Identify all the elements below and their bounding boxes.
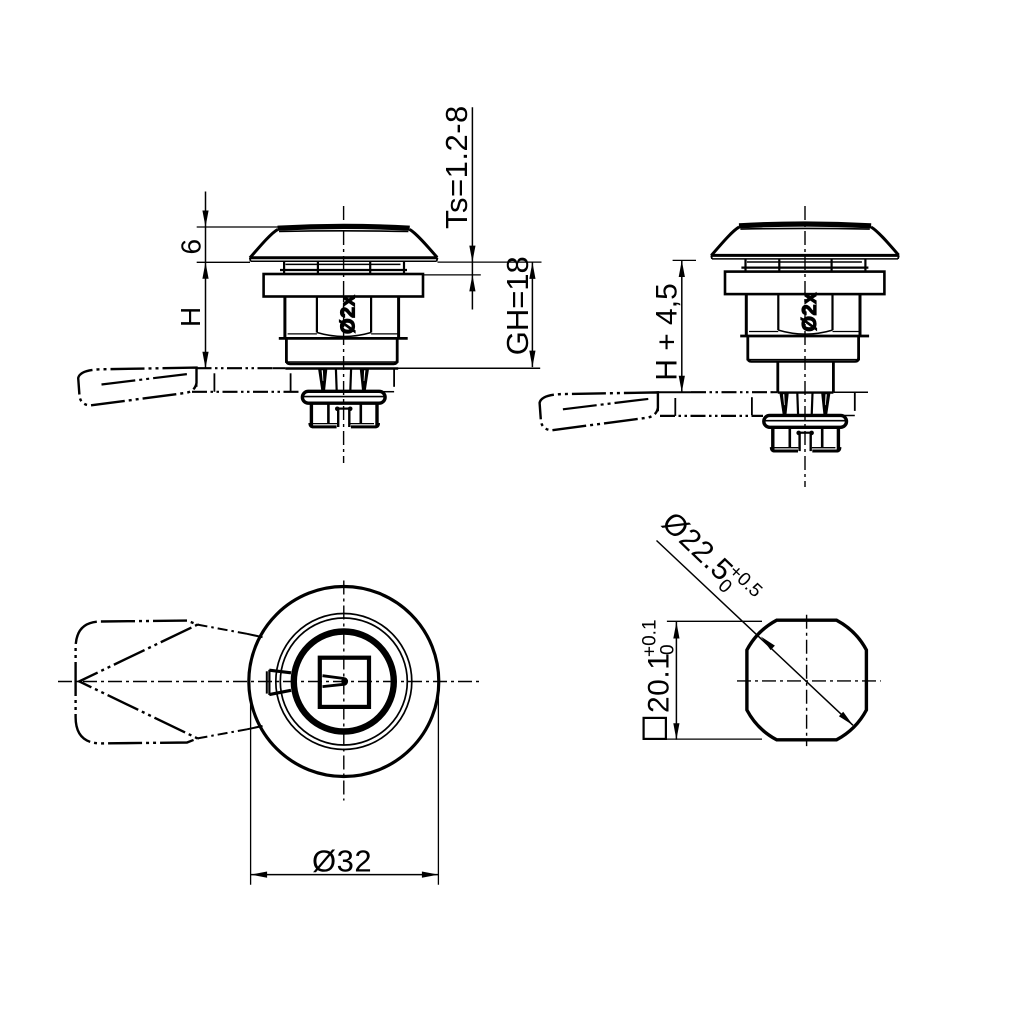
svg-text:Ø32: Ø32 [312,843,372,878]
svg-text:0: 0 [658,644,679,655]
svg-text:H: H [175,306,206,327]
svg-text:GH=18: GH=18 [500,256,535,355]
svg-text:Ø2x: Ø2x [338,295,360,334]
svg-text:6: 6 [175,238,206,254]
svg-text:Ts=1.2-8: Ts=1.2-8 [439,105,474,229]
svg-text:H + 4,5: H + 4,5 [651,283,684,381]
svg-text:Ø2x: Ø2x [799,292,821,331]
svg-text:20.1: 20.1 [643,653,676,713]
